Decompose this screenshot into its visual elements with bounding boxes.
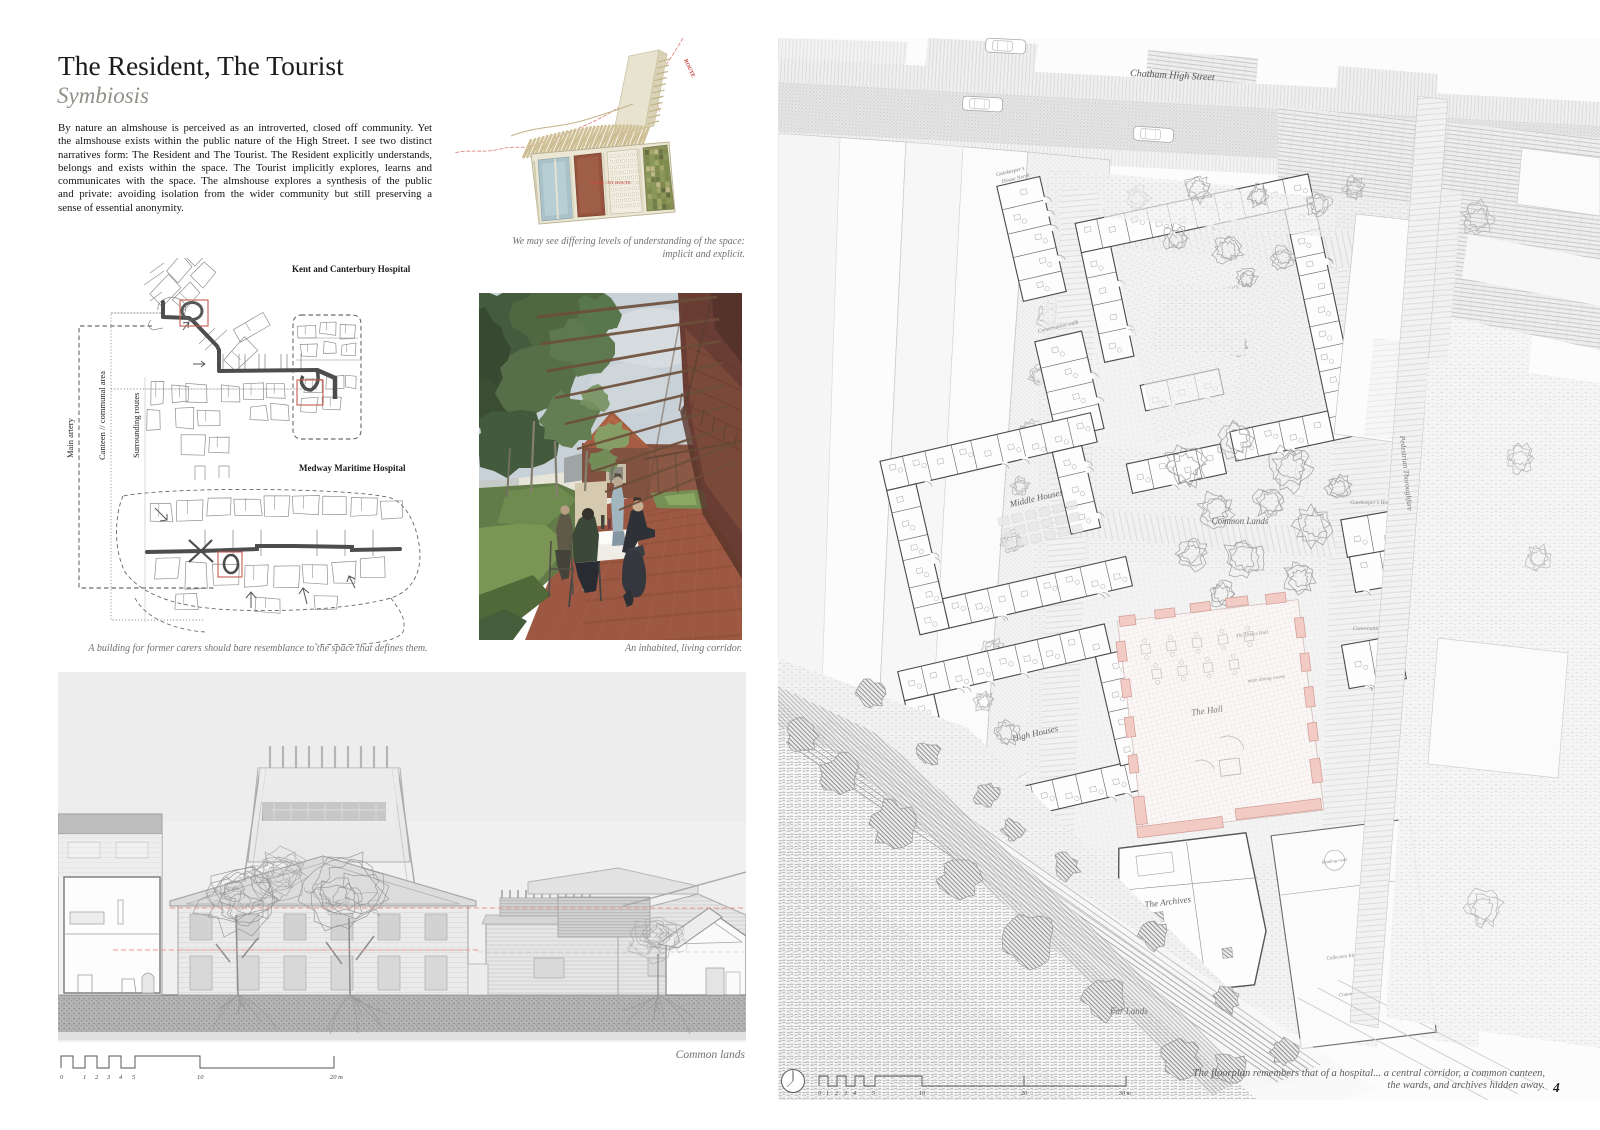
- svg-text:10: 10: [197, 1074, 204, 1081]
- svg-text:Kent and Canterbury Hospital: Kent and Canterbury Hospital: [292, 264, 411, 274]
- svg-text:0: 0: [60, 1074, 64, 1081]
- svg-text:Common Lands: Common Lands: [1212, 516, 1269, 526]
- svg-text:3: 3: [106, 1074, 111, 1081]
- svg-text:Canteen // communal area: Canteen // communal area: [97, 371, 107, 460]
- svg-text:4: 4: [853, 1090, 856, 1097]
- svg-text:1: 1: [83, 1074, 86, 1081]
- svg-text:1: 1: [826, 1091, 829, 1097]
- svg-text:ROUTE: ROUTE: [682, 58, 696, 79]
- svg-text:0: 0: [818, 1091, 821, 1097]
- svg-text:RESIDENT ROUTE: RESIDENT ROUTE: [591, 180, 631, 185]
- svg-text:4: 4: [119, 1074, 123, 1081]
- svg-text:30 m: 30 m: [1118, 1091, 1132, 1097]
- svg-text:Main artery: Main artery: [65, 417, 75, 458]
- svg-text:20 m: 20 m: [330, 1074, 343, 1081]
- svg-text:2: 2: [95, 1074, 99, 1081]
- svg-text:Surrounding routes: Surrounding routes: [131, 393, 141, 458]
- svg-text:5: 5: [132, 1074, 136, 1081]
- svg-text:10: 10: [919, 1091, 925, 1097]
- svg-text:3: 3: [843, 1091, 847, 1097]
- svg-text:Far Lands: Far Lands: [1109, 1006, 1148, 1016]
- svg-text:Medway Maritime Hospital: Medway Maritime Hospital: [299, 463, 406, 473]
- svg-text:2: 2: [835, 1091, 838, 1097]
- svg-text:20: 20: [1021, 1091, 1027, 1097]
- svg-text:5: 5: [872, 1091, 875, 1097]
